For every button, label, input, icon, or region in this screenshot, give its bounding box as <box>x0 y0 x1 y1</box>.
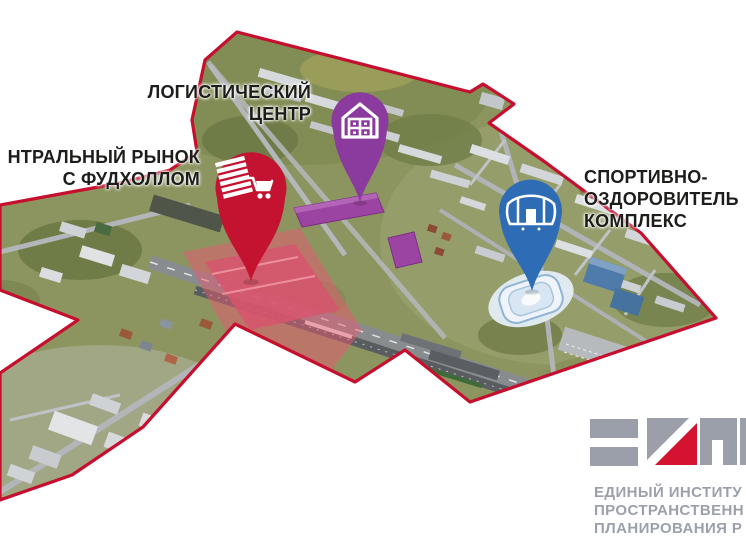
market-label-line2: С ФУДХОЛЛОМ <box>8 168 200 190</box>
logo-text-line2: ПРОСТРАНСТВЕНН <box>594 502 744 520</box>
logo-text-line3: ПЛАНИРОВАНИЯ Р <box>594 520 744 538</box>
aerial-texture <box>0 0 746 559</box>
market-label: НТРАЛЬНЫЙ РЫНОК С ФУДХОЛЛОМ <box>8 146 200 190</box>
sports-label-line1: СПОРТИВНО- <box>584 166 739 188</box>
logo-text-line1: ЕДИНЫЙ ИНСТИТУ <box>594 484 744 502</box>
institute-logo-text: ЕДИНЫЙ ИНСТИТУ ПРОСТРАНСТВЕНН ПЛАНИРОВАН… <box>594 484 744 538</box>
sports-label-line2: ОЗДОРОВИТЕЛЬ <box>584 188 739 210</box>
district-map-infographic: НТРАЛЬНЫЙ РЫНОК С ФУДХОЛЛОМ ЛОГИСТИЧЕСКИ… <box>0 0 746 559</box>
market-label-line1: НТРАЛЬНЫЙ РЫНОК <box>8 146 200 168</box>
logistics-label-line2: ЦЕНТР <box>148 103 311 125</box>
district-map <box>0 0 746 559</box>
sports-label: СПОРТИВНО- ОЗДОРОВИТЕЛЬ КОМПЛЕКС <box>584 166 739 232</box>
sports-label-line3: КОМПЛЕКС <box>584 210 739 232</box>
logistics-label: ЛОГИСТИЧЕСКИЙ ЦЕНТР <box>148 81 311 125</box>
institute-logo: ЕДИНЫЙ ИНСТИТУ ПРОСТРАНСТВЕНН ПЛАНИРОВАН… <box>588 414 746 475</box>
institute-logo-mark <box>588 414 746 470</box>
logistics-label-line1: ЛОГИСТИЧЕСКИЙ <box>148 81 311 103</box>
